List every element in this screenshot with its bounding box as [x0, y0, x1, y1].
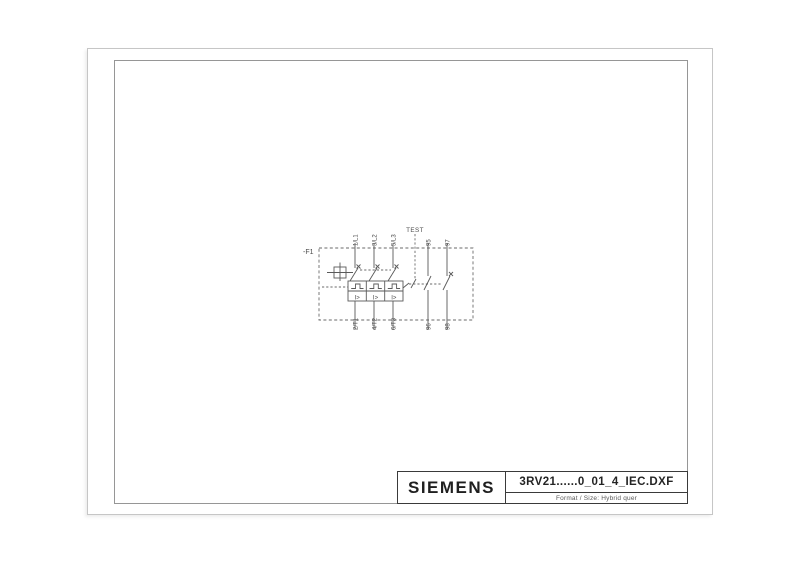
thermal-overload-symbol-2: [370, 284, 382, 289]
circuit-breaker-schematic: -F1 TEST 1/L1 3/L2 5/L3 95 97: [300, 218, 480, 335]
title-block: SIEMENS 3RV21......0_01_4_IEC.DXF Format…: [397, 471, 688, 504]
terminal-label-5L3: 5/L3: [392, 234, 398, 246]
terminal-label-3L2: 3/L2: [373, 234, 379, 246]
terminal-label-96: 96: [427, 323, 433, 330]
magnetic-trip-label-1: I>: [355, 295, 361, 301]
title-block-right: 3RV21......0_01_4_IEC.DXF Format / Size:…: [506, 472, 687, 503]
siemens-logo: SIEMENS: [398, 472, 506, 503]
terminal-label-98: 98: [446, 323, 452, 330]
terminal-label-97: 97: [446, 239, 452, 246]
terminal-label-2T1: 2/T1: [354, 317, 360, 330]
aux-contact-97-98: [443, 243, 453, 330]
drawing-filename: 3RV21......0_01_4_IEC.DXF: [506, 472, 687, 493]
drawing-frame: -F1 TEST 1/L1 3/L2 5/L3 95 97: [114, 60, 688, 504]
terminal-label-95: 95: [427, 239, 433, 246]
drawing-sheet: -F1 TEST 1/L1 3/L2 5/L3 95 97: [87, 48, 713, 515]
terminal-label-4T2: 4/T2: [373, 317, 379, 330]
thermal-overload-symbol-1: [351, 284, 363, 289]
aux-contact-95-96: [424, 243, 431, 330]
thermal-overload-symbol-3: [388, 284, 400, 289]
magnetic-trip-label-3: I>: [391, 295, 397, 301]
magnetic-trip-label-2: I>: [373, 295, 379, 301]
terminal-label-1L1: 1/L1: [354, 234, 360, 246]
dxf-viewer-canvas: -F1 TEST 1/L1 3/L2 5/L3 95 97: [0, 0, 800, 565]
format-size-label: Format / Size: Hybrid quer: [506, 493, 687, 503]
trip-unit-box: I> I> I>: [348, 281, 403, 301]
test-button-label: TEST: [406, 227, 424, 234]
device-designation-label: -F1: [303, 249, 314, 256]
terminal-label-6T3: 6/T3: [392, 317, 398, 330]
aux-trip-linkage: [403, 279, 442, 288]
